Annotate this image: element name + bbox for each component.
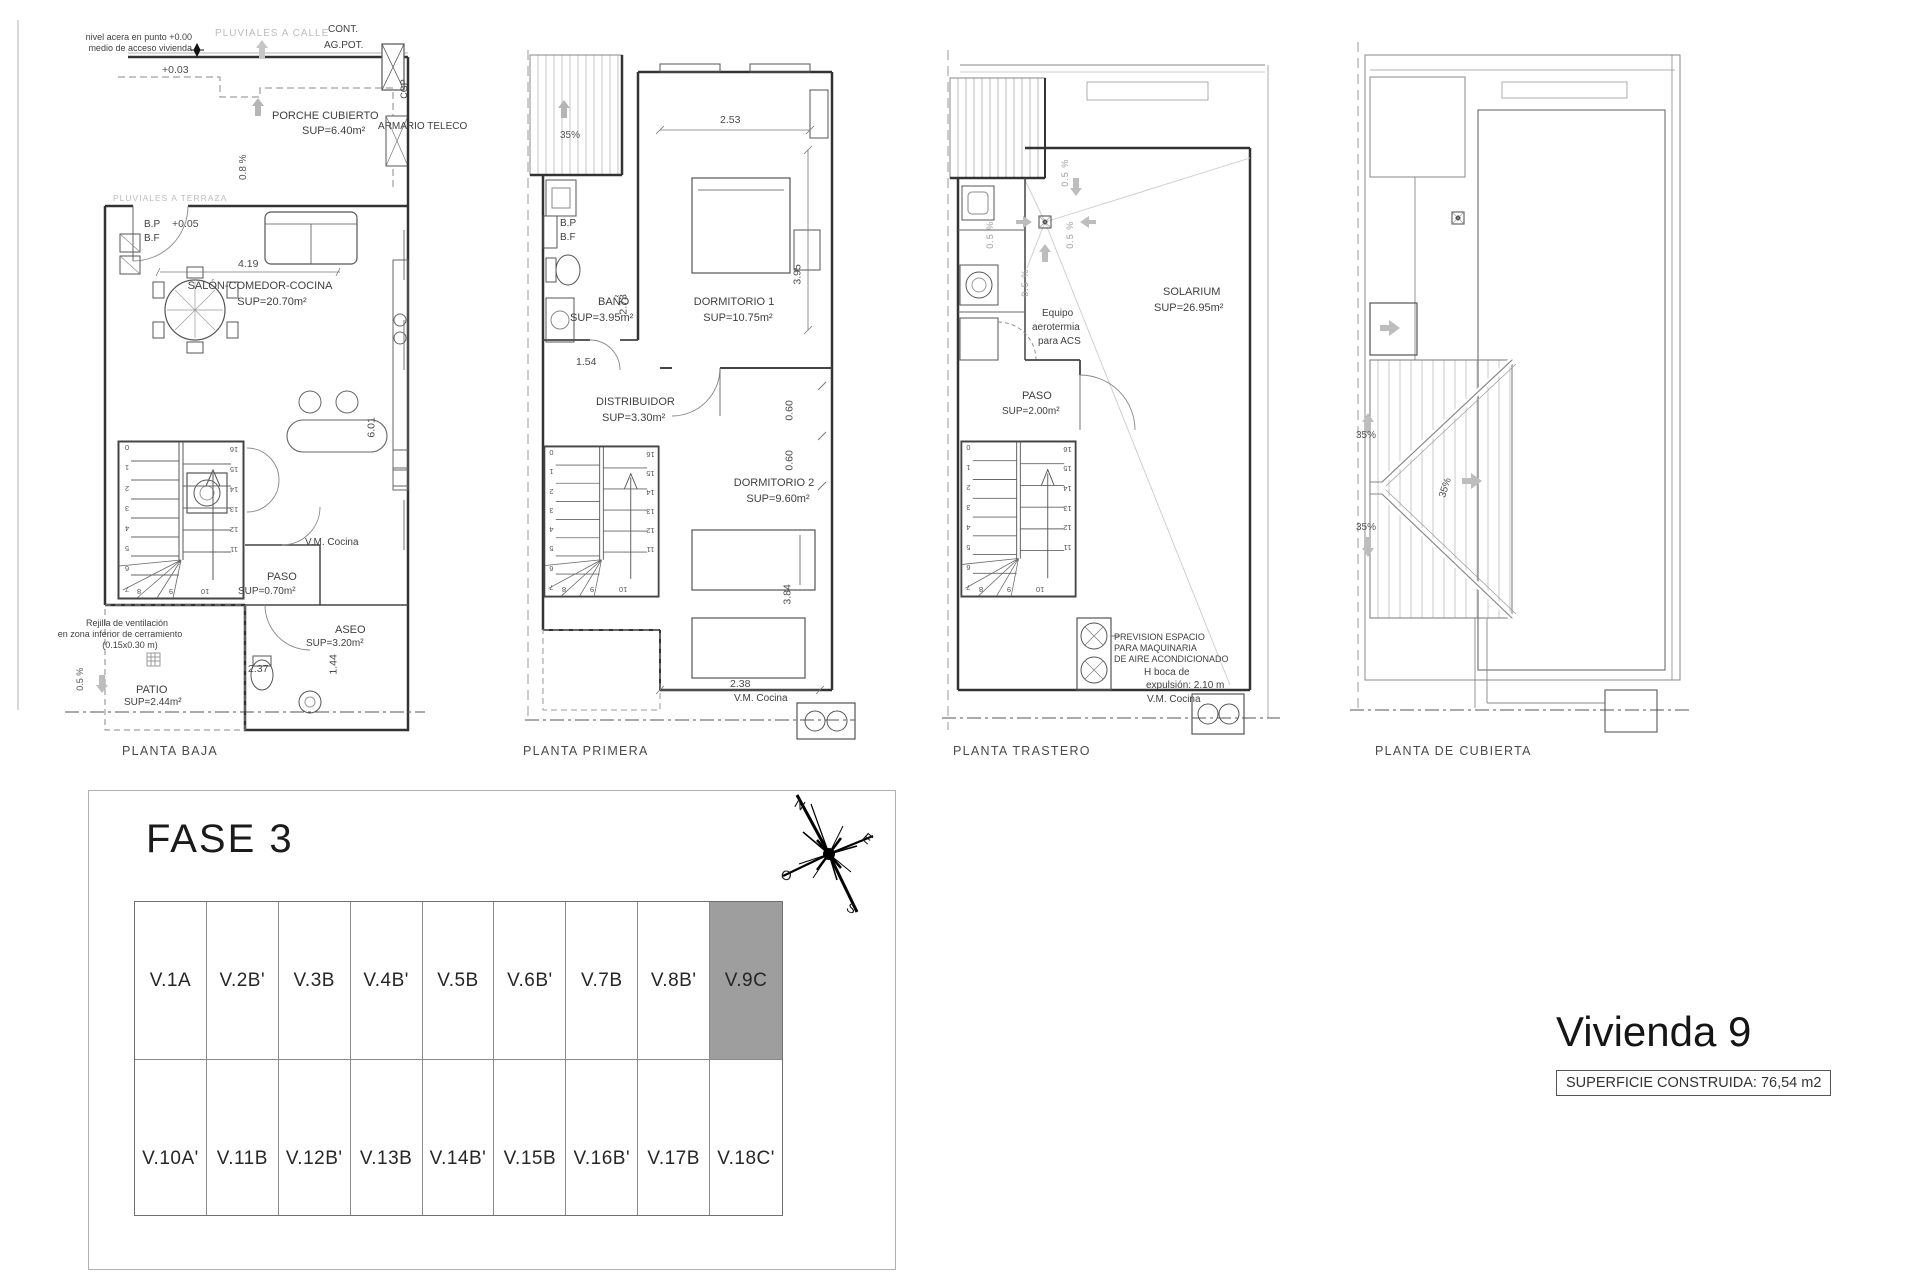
unit-cell-v4b: V.4B' [351, 902, 423, 1060]
plan-planta-cubierta: 35% 35% 35% [1340, 30, 1700, 740]
dim-2-37: 2.37 [248, 663, 268, 676]
plan-planta-trastero: 0.5 % 0.5 % 0.5 % 0.5 % SOLARIUM SUP=26.… [930, 30, 1290, 750]
unit-cell-v5b: V.5B [423, 902, 495, 1060]
dim-2-53: 2.53 [720, 114, 740, 127]
slope-0-5-left: 0.5 % [985, 221, 996, 249]
dim-3-95: 3.95 [791, 264, 804, 284]
bf-label: B.F [560, 232, 576, 244]
slope-0-8-label: 0.8 % [238, 154, 250, 180]
stair-linework [543, 445, 660, 598]
caption-planta-cubierta: PLANTA DE CUBIERTA [1375, 744, 1532, 759]
rejilla-note-line2: en zona inferior de cerramiento [58, 629, 183, 640]
unit-cell-v6b: V.6B' [494, 902, 566, 1060]
caption-planta-primera: PLANTA PRIMERA [523, 744, 649, 759]
aseo-room-name: ASEO [335, 624, 366, 637]
bp-label: B.P [560, 218, 576, 230]
equipo-acs-line1: Equipo [1042, 308, 1073, 320]
equipo-acs-line2: aerotermia [1032, 322, 1080, 334]
solarium-room-area: SUP=26.95m² [1154, 302, 1223, 315]
cota-005: +0.05 [172, 218, 199, 231]
dorm2-room-name: DORMITORIO 2 [734, 477, 814, 490]
prevision-line2: PARA MAQUINARIA [1114, 643, 1197, 654]
dim-4-19: 4.19 [238, 258, 258, 271]
fase3-panel: FASE 3 N [88, 790, 896, 1270]
paso-room-name: PASO [1022, 390, 1052, 403]
aseo-room-area: SUP=3.20m² [306, 638, 364, 650]
stair-step-numbers-right: 161514131211 [1061, 445, 1074, 552]
unit-cell-v11b: V.11B [207, 1060, 279, 1215]
bano-room-area: SUP=3.95m² [570, 312, 633, 325]
superficie-construida-box: SUPERFICIE CONSTRUIDA: 76,54 m2 [1556, 1070, 1831, 1096]
unit-cell-v8b: V.8B' [638, 902, 710, 1060]
unit-cell-v15b: V.15B [494, 1060, 566, 1215]
dim-0-60-b: 0.60 [783, 450, 796, 470]
rejilla-note-line1: Rejilla de ventilación [86, 618, 168, 629]
solarium-room-name: SOLARIUM [1163, 286, 1220, 299]
stair-step-numbers-bottom: 8910 [562, 583, 628, 597]
slope-0-5-right: 0.5 % [1065, 221, 1076, 249]
vm-cocina-label: V.M. Cocina [305, 537, 359, 549]
prevision-line3: DE AIRE ACONDICIONADO [1114, 654, 1229, 665]
plan-planta-primera: 35% 2.53 3.95 B.P B.F 2.73 BAÑO SUP=3.95… [510, 30, 860, 750]
armario-teleco-label: ARMARIO TELECO [378, 121, 467, 133]
unit-cell-v2b: V.2B' [207, 902, 279, 1060]
caption-planta-baja: PLANTA BAJA [122, 744, 218, 759]
unit-cell-v10a: V.10A' [135, 1060, 207, 1215]
stair-step-numbers-right: 161514131211 [644, 450, 657, 554]
slope-0-5-label: 0.5 % [75, 668, 86, 691]
nivel-acera-note-line1: nivel acera en punto +0.00 [86, 32, 192, 43]
caption-planta-trastero: PLANTA TRASTERO [953, 744, 1091, 759]
cota-003: +0.03 [162, 64, 189, 77]
stair-step-numbers-left: 01234567 [962, 443, 975, 592]
cgp-label: CGP [399, 79, 410, 99]
stair-linework [117, 440, 245, 600]
unit-cell-v14b: V.14B' [423, 1060, 495, 1215]
paso-room-area: SUP=0.70m² [238, 586, 296, 598]
vivienda-summary: Vivienda 9 SUPERFICIE CONSTRUIDA: 76,54 … [1556, 1008, 1831, 1096]
vm-cocina-label: V.M. Cocina [734, 693, 788, 705]
bf-label: B.F [144, 233, 160, 245]
unit-grid: V.1A V.2B' V.3B V.4B' V.5B V.6B' V.7B V.… [134, 901, 783, 1216]
planta-cubierta-linework [1340, 30, 1700, 740]
stair-step-numbers-bottom: 8910 [137, 584, 209, 598]
staircase: 01234567 161514131211 8910 [117, 440, 245, 600]
slope-35-upper: 35% [1356, 430, 1376, 442]
dim-2-38: 2.38 [730, 678, 750, 691]
slope-35-lower: 35% [1356, 522, 1376, 534]
slope-35-label: 35% [560, 130, 580, 142]
dorm2-room-area: SUP=9.60m² [746, 493, 809, 506]
equipo-acs-line3: para ACS [1038, 336, 1081, 348]
pluviales-calle-label: PLUVIALES A CALLE [215, 28, 329, 40]
stair-step-numbers-bottom: 8910 [979, 582, 1045, 596]
vivienda-title: Vivienda 9 [1556, 1008, 1831, 1056]
boca-expulsion-line2: expulsión: 2.10 m [1146, 680, 1224, 692]
unit-cell-v12b: V.12B' [279, 1060, 351, 1215]
bp-label: B.P [144, 219, 160, 231]
bano-room-name: BAÑO [598, 296, 629, 309]
patio-room-area: SUP=2.44m² [124, 697, 182, 709]
stair-step-numbers-left: 01234567 [545, 448, 558, 592]
unit-cell-v3b: V.3B [279, 902, 351, 1060]
cont-label: CONT. [328, 24, 358, 36]
unit-cell-v9c-highlighted: V.9C [710, 902, 782, 1060]
pluviales-terraza-label: PLUVIALES A TERRAZA [113, 193, 227, 203]
paso-room-area: SUP=2.00m² [1002, 406, 1060, 418]
unit-cell-v16b: V.16B' [566, 1060, 638, 1215]
fase3-title: FASE 3 [146, 817, 294, 862]
porche-room-name: PORCHE CUBIERTO [272, 110, 379, 123]
rejilla-note-line3: (0.15x0.30 m) [102, 640, 158, 651]
unit-cell-v7b: V.7B [566, 902, 638, 1060]
dim-1-44: 1.44 [327, 654, 340, 674]
porche-room-area: SUP=6.40m² [302, 125, 365, 138]
agpot-label: AG.POT. [324, 40, 363, 52]
drawing-sheet: nivel acera en punto +0.00 medio de acce… [0, 0, 1920, 1280]
staircase: 01234567 161514131211 8910 [543, 445, 660, 598]
dorm1-room-area: SUP=10.75m² [703, 312, 772, 325]
unit-cell-v13b: V.13B [351, 1060, 423, 1215]
dim-0-60-a: 0.60 [783, 400, 796, 420]
salon-room-name: SALÓN-COMEDOR-COCINA [188, 280, 333, 293]
salon-room-area: SUP=20.70m² [237, 296, 306, 309]
slope-0-5-bottom: 0.5 % [1020, 269, 1031, 297]
planta-trastero-linework [930, 30, 1290, 750]
prevision-line1: PREVISION ESPACIO [1114, 632, 1205, 643]
unit-cell-v17b: V.17B [638, 1060, 710, 1215]
stair-linework [960, 440, 1077, 598]
paso-room-name: PASO [267, 571, 297, 584]
stair-step-numbers-right: 161514131211 [227, 445, 241, 554]
slope-0-5-top: 0.5 % [1060, 159, 1071, 187]
vm-cocina-label: V.M. Cocina [1147, 694, 1201, 706]
dim-3-84: 3.84 [781, 584, 794, 604]
unit-cell-v18c: V.18C' [710, 1060, 782, 1215]
stair-step-numbers-left: 01234567 [120, 443, 134, 593]
unit-cell-v1a: V.1A [135, 902, 207, 1060]
dim-1-54: 1.54 [576, 356, 596, 369]
dorm1-room-name: DORMITORIO 1 [694, 296, 774, 309]
dim-6-01: 6.01 [365, 417, 378, 437]
dist-room-area: SUP=3.30m² [602, 412, 665, 425]
boca-expulsion-line1: H boca de [1144, 667, 1190, 679]
nivel-acera-note-line2: medio de acceso vivienda [88, 43, 192, 54]
staircase: 01234567 161514131211 8910 [960, 440, 1077, 598]
plan-planta-baja: nivel acera en punto +0.00 medio de acce… [10, 20, 480, 750]
dist-room-name: DISTRIBUIDOR [596, 396, 675, 409]
patio-room-name: PATIO [136, 684, 167, 697]
